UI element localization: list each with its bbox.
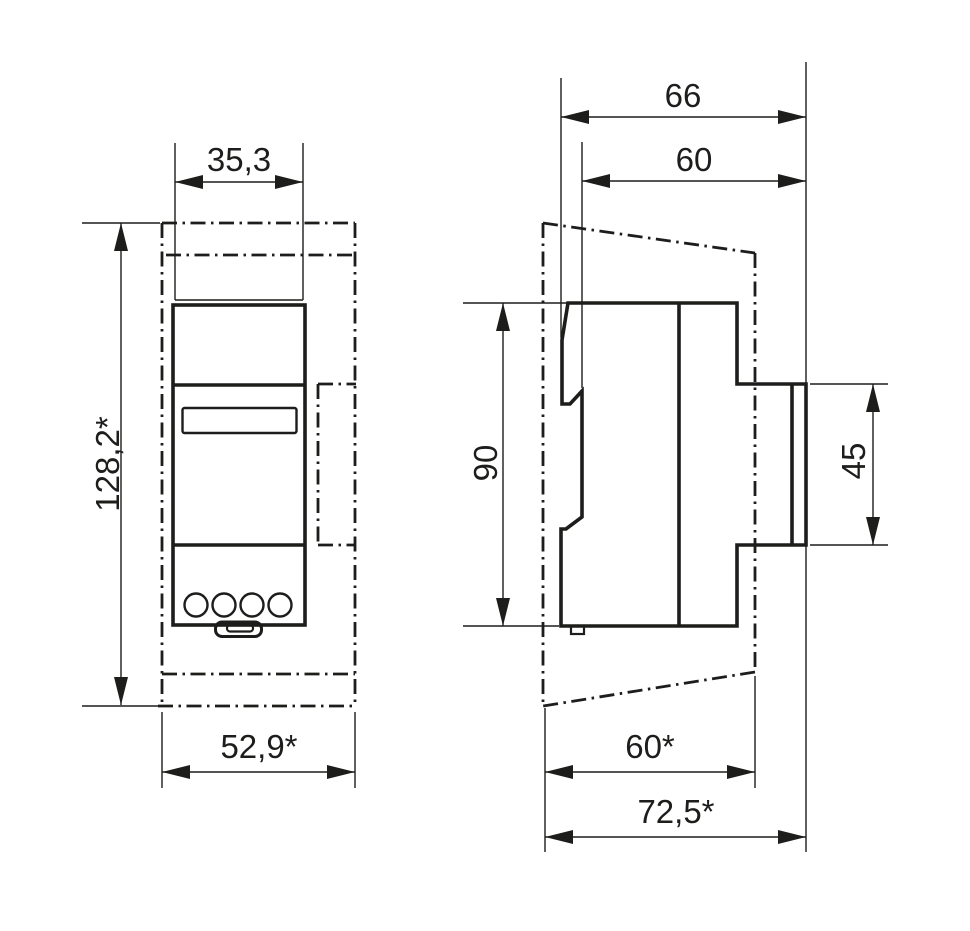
dim-side-device-depth: 60 <box>582 141 806 188</box>
terminal-circle <box>269 594 292 617</box>
arrowhead <box>162 765 190 779</box>
arrowhead <box>496 303 510 331</box>
dim-label-total-depth: 66 <box>665 77 702 114</box>
front-accessory-outline <box>318 384 356 545</box>
dim-label-lower-depth: 60* <box>625 728 675 765</box>
dim-side-rear-height: 45 <box>835 384 880 545</box>
front-device-body <box>173 305 305 625</box>
arrowhead <box>582 174 610 188</box>
arrowhead <box>778 110 806 124</box>
technical-drawing: 35,3 128,2* 52,9* <box>0 0 970 931</box>
arrowhead <box>778 174 806 188</box>
arrowhead <box>275 175 303 189</box>
dim-label-rear-height: 45 <box>835 443 872 480</box>
dim-label-device-depth: 60 <box>676 141 713 178</box>
dim-front-height: 128,2* <box>82 223 160 706</box>
arrowhead <box>175 175 203 189</box>
dimension-drawing-canvas: 35,3 128,2* 52,9* <box>0 0 970 931</box>
front-view: 35,3 128,2* 52,9* <box>82 141 356 788</box>
front-envelope-outline <box>158 223 355 706</box>
dim-label-front-height: 128,2* <box>89 416 126 512</box>
arrowhead <box>866 384 880 412</box>
dim-side-total-depth: 66 <box>561 77 806 124</box>
side-device-profile <box>561 303 806 634</box>
terminal-circle <box>241 594 264 617</box>
dim-front-total-width: 52,9* <box>162 712 355 788</box>
terminal-circle <box>213 594 236 617</box>
arrowhead <box>496 598 510 626</box>
arrowhead <box>114 223 128 251</box>
arrowhead <box>561 110 589 124</box>
arrowhead <box>114 677 128 705</box>
arrowhead <box>545 765 573 779</box>
dim-side-lower-total-depth: 72,5* <box>545 793 806 844</box>
dim-label-front-total-width: 52,9* <box>220 728 297 765</box>
dim-label-front-width: 35,3 <box>207 141 271 178</box>
dim-label-lower-total-depth: 72,5* <box>637 793 714 830</box>
dim-side-lower-depth: 60* <box>545 728 755 779</box>
side-view: 66 60 90 45 60* <box>463 62 888 852</box>
arrowhead <box>866 517 880 545</box>
arrowhead <box>778 830 806 844</box>
dim-side-device-height: 90 <box>467 303 510 626</box>
dim-front-width: 35,3 <box>175 141 303 189</box>
display-window <box>183 408 297 433</box>
arrowhead <box>327 765 355 779</box>
arrowhead <box>727 765 755 779</box>
arrowhead <box>545 830 573 844</box>
dim-label-device-height: 90 <box>467 445 504 482</box>
terminal-circle <box>185 594 208 617</box>
